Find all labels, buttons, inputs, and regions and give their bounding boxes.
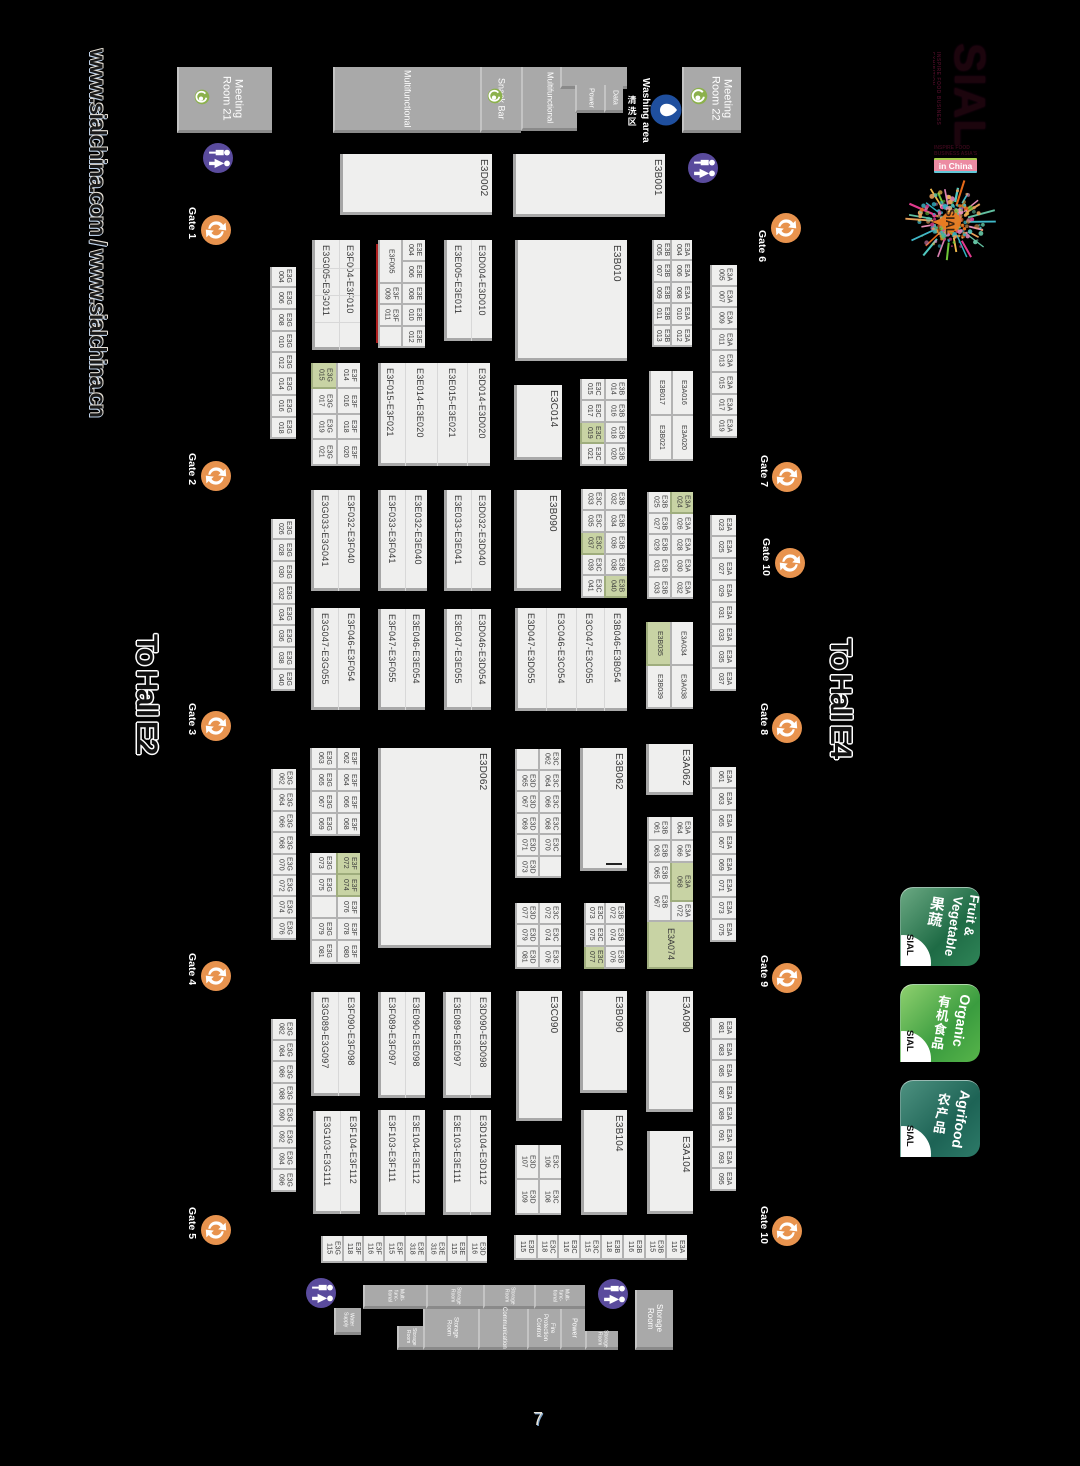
svg-text:SIAL: SIAL: [943, 209, 955, 235]
